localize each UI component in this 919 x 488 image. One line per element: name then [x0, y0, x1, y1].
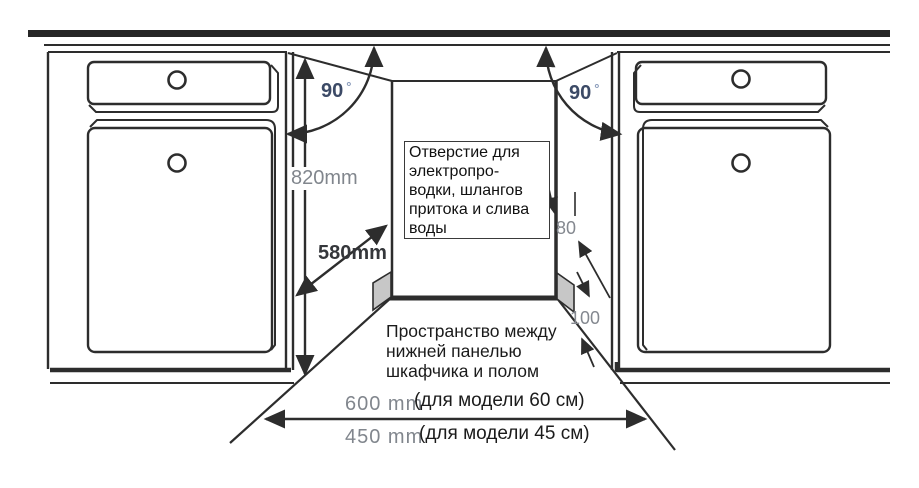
degree-symbol: ° [346, 79, 351, 94]
height-dimension-label: 820mm [289, 167, 360, 190]
countertop-edge-band [28, 30, 890, 37]
width-600-note: (для модели 60 см) [414, 390, 585, 412]
depth-dimension-label: 580mm [318, 242, 387, 265]
opening-note-line: водки, шлангов [409, 181, 549, 200]
right-door-bevel [643, 120, 828, 350]
right-wall-hole [557, 273, 574, 312]
right-cabinet [617, 62, 890, 383]
right-door-knob [733, 155, 750, 172]
floor-gap-note-line: шкафчика и полом [386, 361, 557, 381]
left-cabinet [48, 52, 294, 383]
diagram-linework [0, 0, 919, 488]
opening-note-box: Отверстие для электропро- водки, шлангов… [404, 141, 550, 239]
hole-offset-label: 80 [556, 218, 576, 239]
left-door-bevel [90, 120, 275, 350]
right-drawer [636, 62, 826, 104]
width-600-label: 600 mm [345, 393, 423, 416]
angle-label-right: 90° [569, 81, 599, 105]
left-wall-hole [373, 272, 391, 310]
hole-height-label: 100 [570, 308, 600, 329]
left-door-knob [169, 155, 186, 172]
opening-note-line: Отверстие для [409, 143, 549, 162]
installation-diagram: 90° 90° 820mm 580mm 80 100 600 mm (для м… [0, 0, 919, 488]
opening-note-line: притока и слива [409, 200, 549, 219]
floor-gap-note-line: Пространство между [386, 321, 557, 341]
right-drawer-knob [733, 71, 750, 88]
hole-arrow-80 [579, 242, 610, 298]
degree-symbol: ° [594, 81, 599, 96]
opening-note-line: воды [409, 219, 549, 238]
width-450-note: (для модели 45 см) [419, 423, 590, 445]
hole-arrow-100-top [577, 272, 589, 296]
opening-note-line: электропро- [409, 162, 549, 181]
left-drawer-knob [169, 72, 186, 89]
floor-gap-note-line: нижней панелью [386, 341, 557, 361]
angle-label-left: 90° [321, 79, 351, 103]
countertop [28, 30, 890, 52]
width-450-label: 450 mm [345, 426, 423, 449]
floor-gap-note: Пространство между нижней панелью шкафчи… [386, 321, 557, 381]
